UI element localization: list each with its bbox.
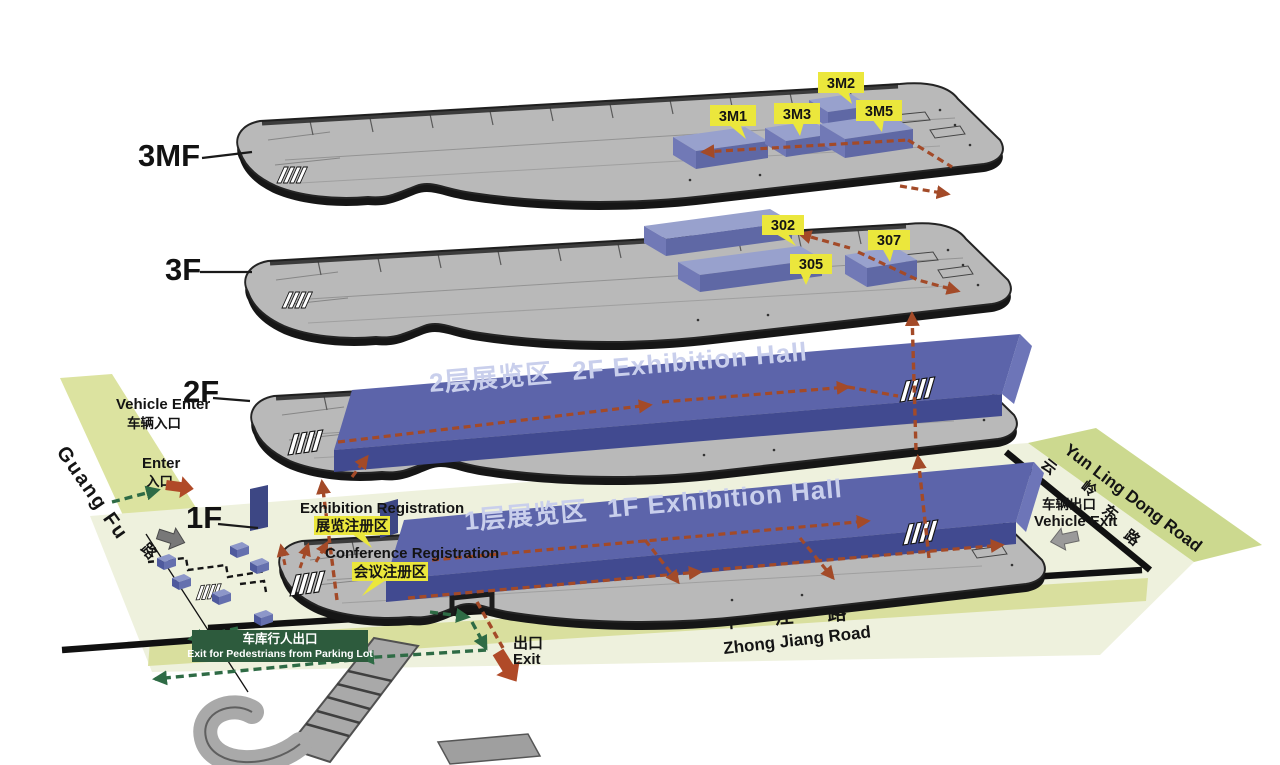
svg-text:305: 305	[799, 257, 823, 273]
exhibition-registration-label: Exhibition Registration	[300, 500, 464, 517]
vehicle-enter-label-cn: 车辆入口	[127, 415, 181, 431]
floor-label-3f: 3F	[165, 252, 201, 287]
svg-text:展览注册区: 展览注册区	[316, 517, 389, 535]
exhibition-center-floor-diagram: Guang Fu 路 中江路 Zhong Jiang Road Yun Ling…	[0, 0, 1280, 765]
svg-text:3M1: 3M1	[719, 109, 747, 125]
vehicle-exit-label-cn: 车辆出口	[1042, 496, 1096, 512]
floor-label-1f: 1F	[186, 500, 222, 535]
svg-text:307: 307	[877, 233, 901, 249]
pedestrian-exit-en: Exit for Pedestrians from Parking Lot	[187, 648, 373, 660]
exit-label-en: Exit	[513, 651, 541, 668]
entrance-wall-1	[250, 485, 268, 531]
svg-text:3M3: 3M3	[783, 107, 811, 123]
floor-label-3mf: 3MF	[138, 138, 200, 173]
floor-3f: 302 305 307 3F	[165, 209, 1011, 350]
conference-registration-label: Conference Registration	[325, 545, 499, 562]
exit-label-cn: 出口	[513, 634, 543, 652]
exit-labels: 出口 Exit	[513, 634, 543, 668]
enter-label-en: Enter	[142, 455, 181, 472]
floor-3mf: 3M1 3M2 3M3 3M5 3MF	[138, 72, 1003, 210]
svg-text:302: 302	[771, 218, 795, 234]
svg-text:3M2: 3M2	[827, 76, 855, 92]
svg-text:3M5: 3M5	[865, 104, 893, 120]
pedestrian-exit-cn: 车库行人出口	[242, 631, 317, 646]
vehicle-enter-label-en: Vehicle Enter	[116, 396, 210, 413]
vehicle-exit-label-en: Vehicle Exit	[1034, 513, 1117, 530]
svg-text:会议注册区: 会议注册区	[354, 563, 427, 581]
site-map: Guang Fu 路 中江路 Zhong Jiang Road Yun Ling…	[0, 0, 1280, 765]
pedestrian-exit-box: 车库行人出口 Exit for Pedestrians from Parking…	[187, 630, 373, 662]
